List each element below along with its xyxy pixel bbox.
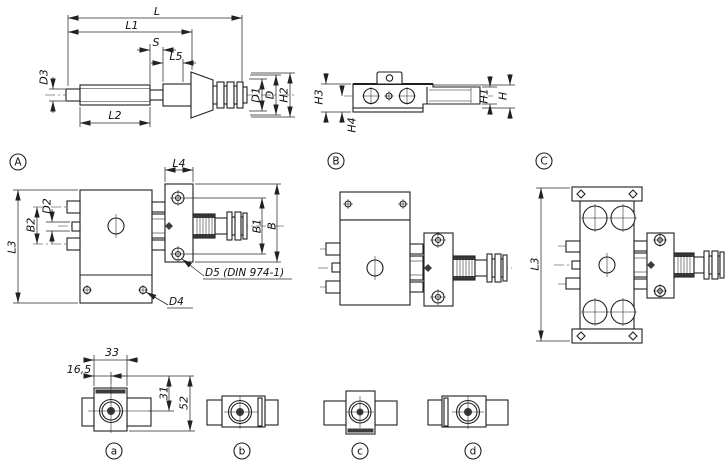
view-end-b: b <box>207 396 278 459</box>
dim-H2: H2 <box>278 87 291 102</box>
dim-H1: H1 <box>478 88 491 103</box>
dim-H3: H3 <box>313 89 326 104</box>
dim-B1: B1 <box>251 219 264 234</box>
view-shaft-side: L L1 S L5 L2 D3 D1 D H2 <box>38 5 297 127</box>
dim-H: H <box>497 92 510 100</box>
dim-L3-c: L3 <box>529 257 542 270</box>
dim-L5: L5 <box>169 50 182 63</box>
marker-B: B <box>332 156 339 168</box>
view-variant-a-top: A <box>6 154 293 308</box>
dim-52: 52 <box>178 396 191 410</box>
dim-L3: L3 <box>6 240 19 253</box>
view-end-c: c <box>324 391 397 459</box>
view-end-a: 33 16,5 31 52 a <box>67 346 195 459</box>
view-variant-b-top: B <box>318 153 512 306</box>
dim-33: 33 <box>105 346 119 359</box>
dim-L1: L1 <box>125 19 138 32</box>
marker-A: A <box>14 157 22 169</box>
dim-L: L <box>154 5 160 18</box>
dim-S: S <box>153 36 160 49</box>
dim-16-5: 16,5 <box>67 363 92 376</box>
dim-D3: D3 <box>38 69 51 84</box>
view-end-d: d <box>428 396 508 459</box>
marker-b: b <box>239 446 246 458</box>
dim-D5: D5 (DIN 974-1) <box>205 267 284 279</box>
view-carriage-side: H3 H4 H1 H <box>313 72 516 133</box>
dim-B: B <box>266 222 279 230</box>
view-variant-c-top: C <box>529 153 725 343</box>
dim-L2: L2 <box>108 109 121 122</box>
technical-drawing-canvas: L L1 S L5 L2 D3 D1 D H2 <box>0 0 727 462</box>
dim-D2: D2 <box>41 198 54 213</box>
dim-31: 31 <box>158 386 171 400</box>
marker-a: a <box>111 446 117 458</box>
marker-d: d <box>470 446 477 458</box>
dim-D4: D4 <box>169 296 184 308</box>
marker-C: C <box>540 156 547 168</box>
dim-D: D <box>264 91 277 99</box>
dim-D1: D1 <box>250 87 263 102</box>
dim-H4: H4 <box>346 117 359 132</box>
dim-L4: L4 <box>172 157 185 170</box>
marker-c: c <box>357 446 363 458</box>
dim-B2: B2 <box>25 218 38 233</box>
